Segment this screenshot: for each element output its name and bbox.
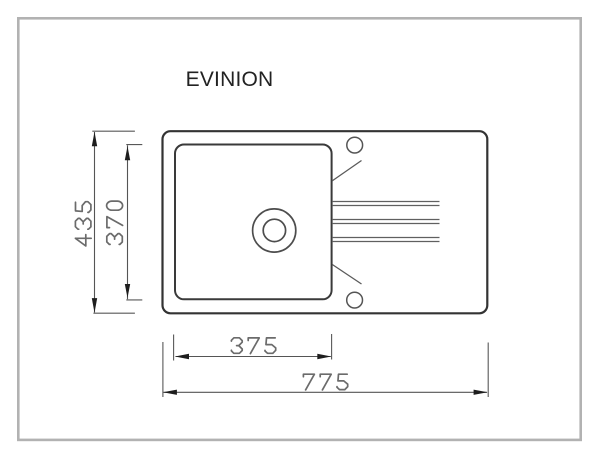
svg-text:EVINION: EVINION [186, 68, 274, 91]
